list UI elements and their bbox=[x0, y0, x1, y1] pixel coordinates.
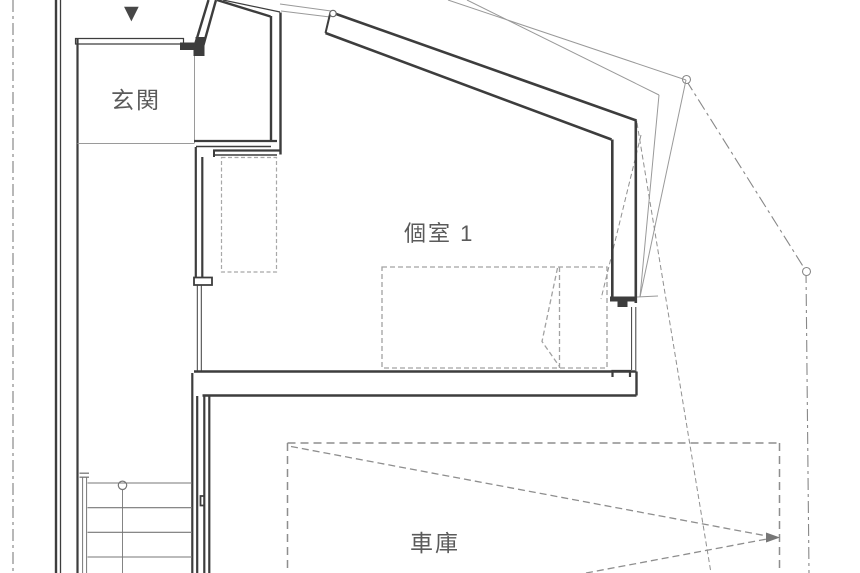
upper-hall-walls bbox=[194, 0, 281, 157]
bed-cover-fold-line bbox=[542, 268, 560, 367]
room1-east-wall-end-cap bbox=[610, 297, 637, 308]
roof-outline-lines bbox=[448, 0, 686, 297]
roof-edge-lower bbox=[467, 0, 659, 95]
diagonal-wall-start-marker bbox=[330, 10, 336, 16]
room1-closet-dashed bbox=[222, 158, 277, 273]
stair-newel-post-marker bbox=[118, 481, 126, 489]
entry-diagonal-wall-inner bbox=[202, 0, 217, 52]
floor-plan-page: ▼ 玄関 個室 1 車庫 bbox=[0, 0, 860, 573]
garage-dashed-outline bbox=[288, 443, 781, 573]
garage-diagonal-upper bbox=[291, 447, 767, 537]
sight-guide-lines bbox=[601, 123, 711, 573]
room1-bed-dashed bbox=[382, 267, 607, 368]
garage-diagonal-lower bbox=[586, 539, 767, 573]
garage-direction-arrowhead bbox=[766, 533, 780, 543]
diagonal-window-line2 bbox=[281, 11, 330, 17]
room-label-entrance: 玄関 bbox=[111, 81, 161, 115]
diagonal-wall-outer-face bbox=[331, 12, 637, 121]
room1-south-wall-notch bbox=[613, 371, 631, 377]
guide-line-corner-to-bottom bbox=[637, 123, 711, 573]
room1-south-wall bbox=[194, 371, 637, 396]
diagonal-window-line1 bbox=[280, 4, 331, 11]
closet-outline bbox=[222, 158, 277, 273]
roof-ridge-line bbox=[640, 80, 686, 297]
room-label-garage: 車庫 bbox=[410, 524, 460, 558]
room-label-room1: 個室 1 bbox=[404, 216, 474, 248]
room1-diagonal-wall bbox=[280, 4, 637, 140]
bed-outline bbox=[382, 267, 607, 368]
room1-west-wall-end-cap bbox=[194, 278, 212, 286]
staircase bbox=[80, 473, 193, 573]
roof-edge-upper bbox=[448, 0, 686, 80]
property-line-right-lower bbox=[806, 271, 809, 573]
stairwell-walls bbox=[192, 373, 209, 573]
room1-west-wall bbox=[194, 147, 212, 371]
west-exterior-wall bbox=[56, 0, 78, 573]
entrance-direction-icon: ▼ bbox=[119, 1, 146, 26]
diagonal-wall-inner-face bbox=[326, 33, 612, 140]
property-line-right-upper bbox=[686, 80, 806, 271]
boundary-point-marker-right bbox=[803, 268, 811, 276]
